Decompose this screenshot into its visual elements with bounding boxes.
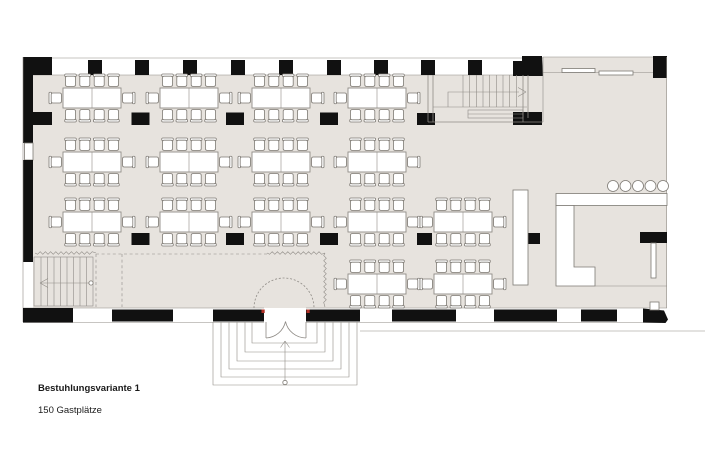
chair	[108, 74, 120, 86]
chair	[297, 174, 309, 186]
chair	[79, 234, 91, 246]
chair	[49, 216, 61, 228]
chair	[479, 198, 491, 210]
chair	[176, 198, 188, 210]
chair	[93, 110, 105, 122]
chair	[108, 110, 120, 122]
chair	[268, 234, 280, 246]
chair	[350, 174, 362, 186]
chair	[282, 198, 294, 210]
chair	[93, 138, 105, 150]
wall-niche	[25, 143, 34, 160]
chair	[268, 74, 280, 86]
door-marker	[262, 310, 265, 314]
chair	[494, 278, 506, 290]
door-marker	[307, 310, 310, 314]
chair	[205, 234, 217, 246]
chair	[464, 234, 476, 246]
chair	[282, 110, 294, 122]
chair	[162, 198, 174, 210]
chair	[238, 92, 250, 104]
bar-stool	[645, 181, 656, 192]
chair	[220, 156, 232, 168]
chair	[364, 296, 376, 308]
chair	[393, 234, 405, 246]
chair	[93, 74, 105, 86]
wall-corner	[23, 308, 73, 323]
chair	[254, 138, 266, 150]
chair	[190, 138, 202, 150]
chair	[350, 296, 362, 308]
chair	[162, 110, 174, 122]
chair	[393, 110, 405, 122]
chair	[436, 296, 448, 308]
bar-stool	[620, 181, 631, 192]
chair	[93, 174, 105, 186]
chair	[393, 138, 405, 150]
chair	[146, 156, 158, 168]
chair	[350, 138, 362, 150]
chair	[190, 174, 202, 186]
chair	[79, 110, 91, 122]
chair	[364, 138, 376, 150]
chair	[364, 260, 376, 272]
chair	[479, 234, 491, 246]
chair	[312, 92, 324, 104]
chair	[408, 216, 420, 228]
chair	[254, 74, 266, 86]
chair	[479, 260, 491, 272]
chair	[79, 74, 91, 86]
chair	[464, 296, 476, 308]
chair	[297, 138, 309, 150]
wall-pillar	[640, 232, 667, 243]
chair	[254, 234, 266, 246]
chair	[297, 74, 309, 86]
chair	[238, 156, 250, 168]
chair	[190, 234, 202, 246]
chair	[408, 92, 420, 104]
chair	[176, 138, 188, 150]
entry-arrow	[281, 341, 290, 380]
chair	[254, 110, 266, 122]
chair	[378, 296, 390, 308]
chair	[350, 74, 362, 86]
chair	[65, 174, 77, 186]
chair	[162, 174, 174, 186]
wall-pillar	[33, 112, 52, 125]
chair	[49, 156, 61, 168]
chair	[65, 138, 77, 150]
chair	[65, 110, 77, 122]
chair	[364, 110, 376, 122]
chair	[408, 278, 420, 290]
sliding-door	[599, 71, 633, 75]
chair	[350, 234, 362, 246]
chair	[364, 74, 376, 86]
chair	[334, 216, 346, 228]
chair	[450, 296, 462, 308]
pillar	[320, 113, 338, 126]
chair	[238, 216, 250, 228]
wall-stub	[651, 243, 656, 278]
chair	[364, 234, 376, 246]
bar-stool	[658, 181, 669, 192]
chair	[494, 216, 506, 228]
chair	[436, 198, 448, 210]
chair	[176, 174, 188, 186]
chair	[393, 174, 405, 186]
chair	[408, 156, 420, 168]
chair	[93, 234, 105, 246]
chair	[436, 260, 448, 272]
chair	[79, 174, 91, 186]
chair	[436, 234, 448, 246]
chair	[123, 216, 135, 228]
chair	[162, 138, 174, 150]
chair	[65, 234, 77, 246]
chair	[93, 198, 105, 210]
chair	[378, 234, 390, 246]
pillar	[320, 233, 338, 245]
chair	[162, 74, 174, 86]
chair	[220, 92, 232, 104]
pillar	[132, 233, 150, 245]
chair	[176, 110, 188, 122]
chair	[268, 174, 280, 186]
chair	[65, 74, 77, 86]
bar-stool	[608, 181, 619, 192]
chair	[378, 174, 390, 186]
chair	[65, 198, 77, 210]
plan-title: Bestuhlungsvariante 1	[38, 384, 140, 394]
buffet-table	[513, 190, 528, 285]
entrance-door	[262, 310, 310, 339]
chair	[282, 138, 294, 150]
chair	[190, 198, 202, 210]
pillar	[132, 113, 150, 126]
chair	[108, 198, 120, 210]
chair	[312, 216, 324, 228]
bar-counter-top	[556, 194, 667, 206]
chair	[108, 174, 120, 186]
chair	[297, 198, 309, 210]
chair	[49, 92, 61, 104]
chair	[108, 138, 120, 150]
pillar	[226, 113, 244, 126]
bar-stool	[633, 181, 644, 192]
chair	[378, 198, 390, 210]
chair	[282, 174, 294, 186]
chair	[312, 156, 324, 168]
chair	[364, 198, 376, 210]
chair	[79, 138, 91, 150]
sliding-door	[562, 69, 595, 73]
chair	[334, 278, 346, 290]
chair	[464, 260, 476, 272]
chair	[334, 156, 346, 168]
pillar	[417, 113, 435, 125]
chair	[268, 138, 280, 150]
chair	[205, 74, 217, 86]
chair	[479, 296, 491, 308]
floor-plan-drawing	[0, 0, 705, 470]
chair	[146, 216, 158, 228]
chair	[378, 260, 390, 272]
chair	[176, 234, 188, 246]
chair	[123, 92, 135, 104]
wall-pillar	[653, 56, 667, 78]
chair	[108, 234, 120, 246]
wall-corner	[513, 56, 543, 76]
chair	[393, 74, 405, 86]
chair	[350, 198, 362, 210]
chair	[450, 234, 462, 246]
pillar	[528, 233, 540, 244]
entrance-steps	[213, 322, 357, 385]
chair	[378, 110, 390, 122]
chair	[205, 198, 217, 210]
chair	[393, 260, 405, 272]
plan-subtitle: 150 Gastplätze	[38, 406, 102, 416]
chair	[378, 74, 390, 86]
bar-stools	[608, 181, 669, 192]
pillar	[226, 233, 244, 245]
chair	[268, 198, 280, 210]
top-wall	[23, 56, 543, 76]
chair	[205, 110, 217, 122]
chair	[350, 260, 362, 272]
chair	[268, 110, 280, 122]
chair	[254, 198, 266, 210]
chair	[254, 174, 266, 186]
floor-plan-sheet: Bestuhlungsvariante 1 150 Gastplätze	[0, 0, 705, 470]
chair	[282, 234, 294, 246]
chair	[190, 74, 202, 86]
chair	[297, 234, 309, 246]
chair	[364, 174, 376, 186]
chair	[450, 260, 462, 272]
chair	[176, 74, 188, 86]
chair	[162, 234, 174, 246]
chair	[420, 216, 432, 228]
chair	[297, 110, 309, 122]
chair	[282, 74, 294, 86]
side-door	[650, 302, 659, 310]
chair	[334, 92, 346, 104]
chair	[146, 92, 158, 104]
chair	[464, 198, 476, 210]
chair	[393, 198, 405, 210]
chair	[220, 216, 232, 228]
chair	[79, 198, 91, 210]
chair	[350, 110, 362, 122]
chair	[190, 110, 202, 122]
chair	[123, 156, 135, 168]
chair	[393, 296, 405, 308]
pillar	[417, 233, 432, 245]
chair	[420, 278, 432, 290]
chair	[205, 138, 217, 150]
chair	[378, 138, 390, 150]
chair	[450, 198, 462, 210]
wall-corner	[643, 309, 668, 324]
chair	[205, 174, 217, 186]
